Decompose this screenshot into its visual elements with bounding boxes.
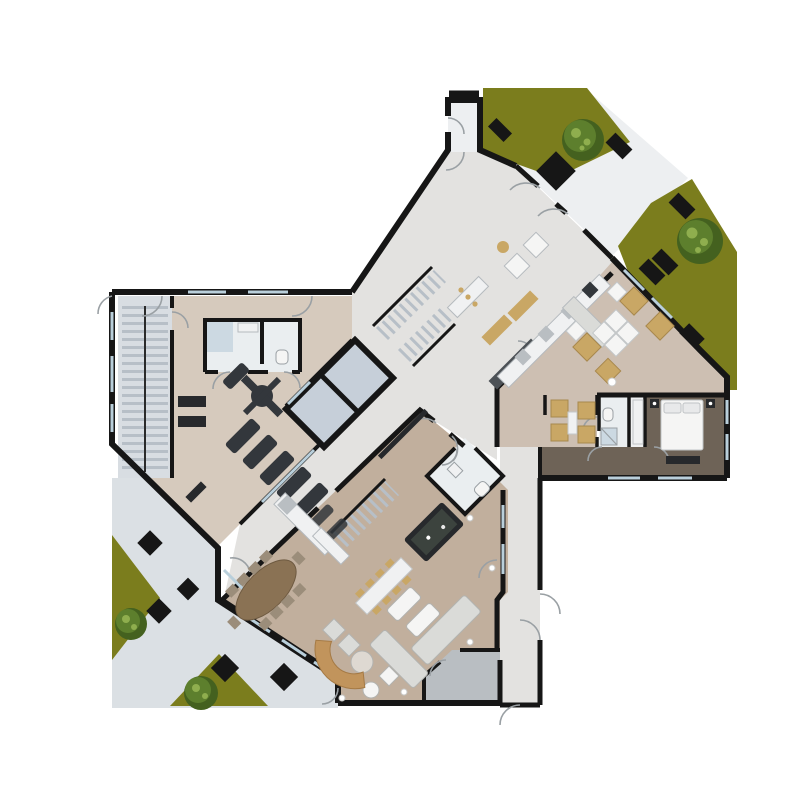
floor-plan-canvas <box>0 0 799 799</box>
pendant-light <box>472 301 477 306</box>
tree <box>562 119 604 161</box>
suite-bed-bench <box>666 456 700 464</box>
door-arc <box>540 594 560 614</box>
tan-cushion <box>578 402 595 419</box>
spot-light <box>467 515 473 521</box>
spot-light <box>489 565 495 571</box>
gym-shower-tile <box>207 322 233 352</box>
vestibule-floor <box>448 100 480 152</box>
suite-pillow <box>664 403 681 413</box>
lobby-side-table <box>497 241 509 253</box>
gym-toilet <box>276 350 288 364</box>
lounge-low-table <box>568 412 577 434</box>
pendant-light <box>465 294 470 299</box>
round-side-table <box>351 651 373 673</box>
suite-kitchenette <box>633 400 643 444</box>
dumbbell-rack <box>178 416 206 427</box>
pendant-light <box>458 287 463 292</box>
tan-cushion <box>551 400 568 417</box>
spot-light <box>339 695 345 701</box>
suite-pillow <box>683 403 700 413</box>
tan-cushion <box>551 424 568 441</box>
dumbbell-rack <box>178 396 206 407</box>
round-pouf <box>363 682 379 698</box>
suite-sconce-light <box>709 402 713 406</box>
spot-light <box>467 639 473 645</box>
suite-sconce-light <box>653 402 657 406</box>
spot-light <box>608 378 616 386</box>
floor-plan-svg <box>0 0 799 799</box>
tan-cushion <box>578 426 595 443</box>
tree <box>115 608 147 640</box>
gym-sink-counter <box>238 323 258 332</box>
tree <box>184 676 218 710</box>
spot-light <box>401 689 407 695</box>
tree <box>677 218 723 264</box>
suite-toilet <box>603 408 613 421</box>
